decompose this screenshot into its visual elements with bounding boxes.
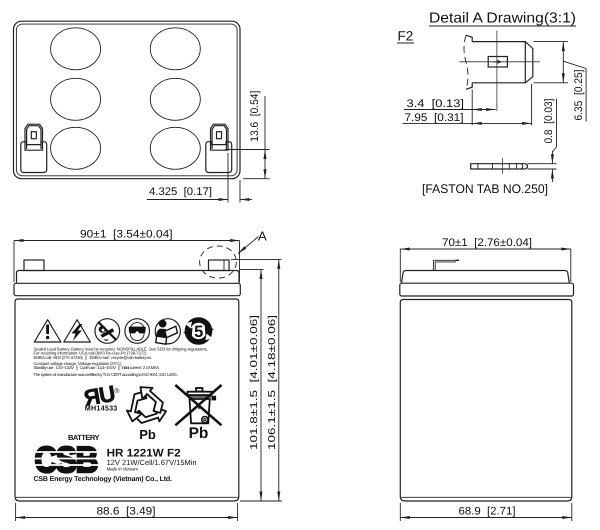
- svg-text:CSB: CSB: [34, 439, 97, 480]
- svg-text:101.8±1.5 [4.01±0.06]: 101.8±1.5 [4.01±0.06]: [249, 315, 260, 450]
- svg-text:106.1±1.5 [4.18±0.06]: 106.1±1.5 [4.18±0.06]: [267, 315, 278, 450]
- svg-text:7.95 [0.31]: 7.95 [0.31]: [405, 112, 464, 124]
- svg-text:3.4 [0.13]: 3.4 [0.13]: [407, 98, 465, 110]
- svg-text:Pb: Pb: [139, 427, 156, 442]
- svg-text:Pb: Pb: [189, 425, 209, 442]
- svg-text:88.6 [3.49]: 88.6 [3.49]: [97, 506, 156, 518]
- svg-text:6.35 [0.25]: 6.35 [0.25]: [573, 70, 585, 121]
- svg-text:[FASTON TAB NO.250]: [FASTON TAB NO.250]: [422, 182, 548, 196]
- svg-text:70±1 [2.76±0.04]: 70±1 [2.76±0.04]: [442, 237, 532, 249]
- svg-text:The system of manufacture was: The system of manufacture was certified …: [34, 372, 178, 377]
- svg-text:13.6 [0.54]: 13.6 [0.54]: [249, 91, 261, 142]
- svg-text:®: ®: [114, 388, 120, 395]
- svg-text:CSB Energy Technology (Vietnam: CSB Energy Technology (Vietnam) Co., Ltd…: [34, 475, 173, 483]
- svg-text:Made in Vietnam: Made in Vietnam: [107, 467, 139, 472]
- svg-text:Standby use : 13.5~13.8V ║ C: Standby use : 13.5~13.8V ║ Cycle use : 1…: [34, 365, 161, 371]
- svg-text:68.9 [2.71]: 68.9 [2.71]: [459, 506, 516, 518]
- svg-text:90±1 [3.54±0.04]: 90±1 [3.54±0.04]: [80, 229, 173, 241]
- svg-text:Detail A Drawing(3:1): Detail A Drawing(3:1): [429, 11, 576, 27]
- svg-text:A: A: [258, 229, 267, 244]
- svg-text:0.8 [0.03]: 0.8 [0.03]: [543, 99, 555, 144]
- svg-text:5: 5: [194, 323, 203, 341]
- svg-text:4.325 [0.17]: 4.325 [0.17]: [149, 186, 212, 198]
- svg-text:F2: F2: [398, 29, 414, 44]
- svg-text:MH14533: MH14533: [85, 403, 118, 412]
- svg-text:EMEA call +800 (272-47236) ║: EMEA call +800 (272-47236) ║ EMEA mail :…: [34, 355, 153, 361]
